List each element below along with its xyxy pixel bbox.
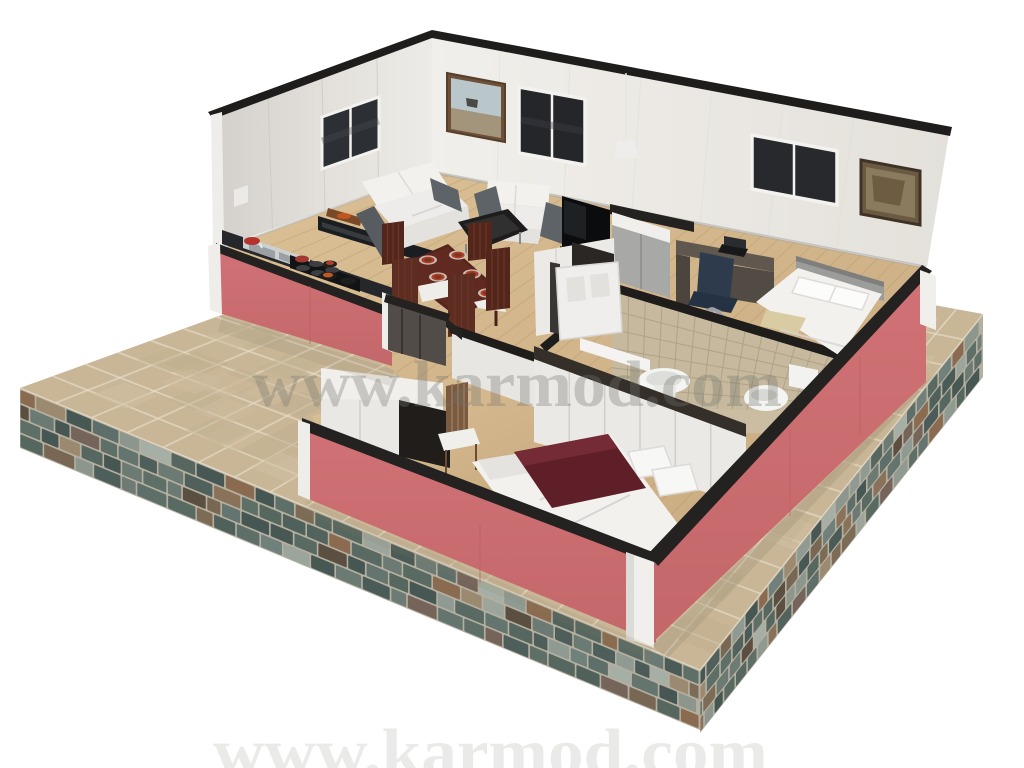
svg-text:www.karmod.com: www.karmod.com	[252, 348, 782, 421]
svg-text:www.karmod.com: www.karmod.com	[213, 716, 768, 768]
